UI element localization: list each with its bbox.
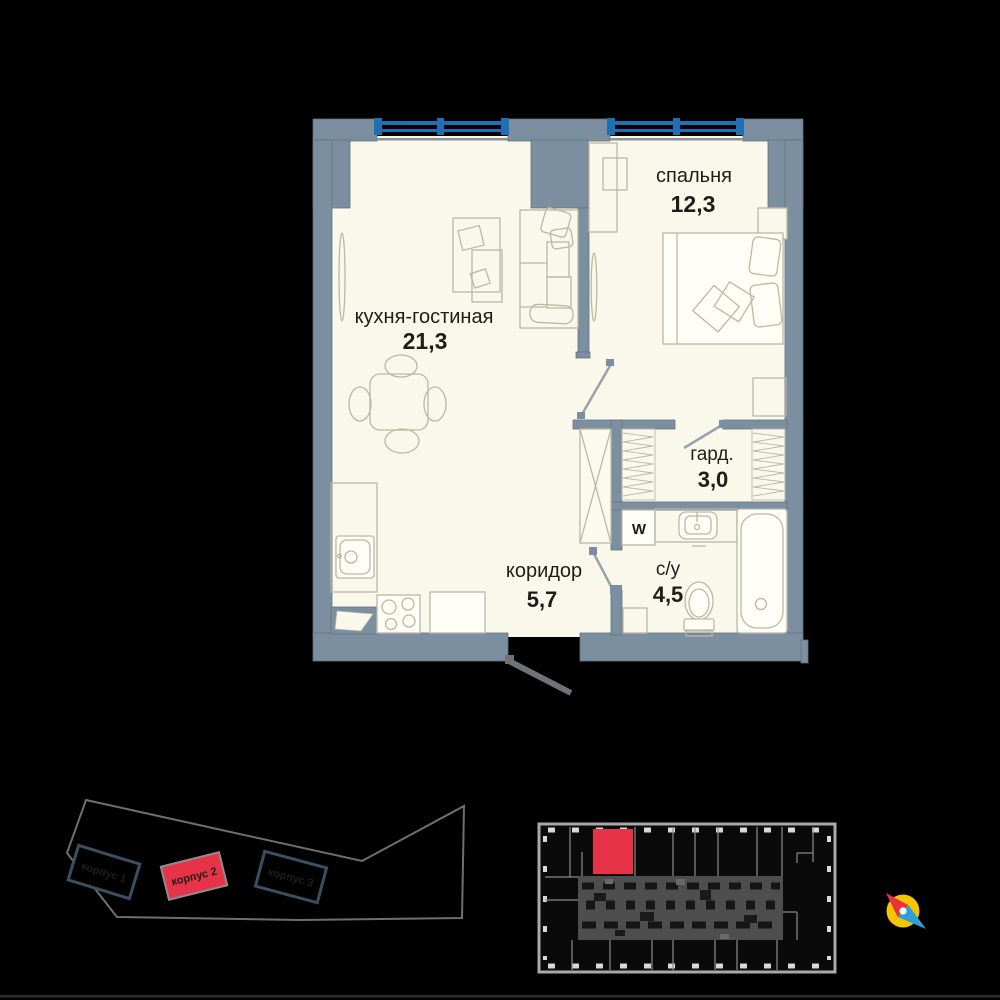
- compass-pivot: [899, 907, 906, 914]
- bathroom-door-hinge: [610, 585, 622, 594]
- wall-top-right-pier: [743, 119, 803, 141]
- core-block: [578, 876, 783, 940]
- room-label-kitchen-living: кухня-гостиная: [355, 306, 494, 328]
- wall-bottom-right: [580, 633, 803, 661]
- compass-icon: [886, 893, 926, 929]
- wall-top-middle-pier: [508, 119, 610, 141]
- floor-plan: кухня-гостиная 21,3 спальня 12,3 гард. 3…: [313, 118, 808, 693]
- bed: [663, 233, 783, 344]
- wall-corridor-east: [723, 420, 787, 429]
- room-area-bathroom: 4,5: [653, 582, 684, 607]
- wall-corridor-vertical: [611, 420, 622, 550]
- floor-schematic: [539, 824, 835, 972]
- bedroom-door-jamb: [606, 359, 614, 366]
- room-label-bedroom: спальня: [656, 165, 732, 187]
- bathroom-door-jamb: [589, 547, 597, 555]
- apartment-plan-page: кухня-гостиная 21,3 спальня 12,3 гард. 3…: [0, 0, 1000, 1000]
- wall-right: [785, 140, 803, 635]
- washer-label: W: [632, 521, 647, 538]
- wardrobe-door-hinge: [719, 420, 726, 428]
- corridor-closet: [580, 429, 611, 543]
- room-label-wardrobe: гард.: [690, 444, 734, 465]
- building-korpus-3[interactable]: корпус 3: [255, 851, 326, 902]
- wall-partition-end-cap: [576, 352, 590, 358]
- room-area-corridor: 5,7: [527, 587, 558, 612]
- wall-bathroom-left-lower: [611, 590, 622, 635]
- bottom-divider: [0, 995, 1000, 998]
- highlighted-unit[interactable]: [593, 829, 633, 874]
- bedroom-door-hinge: [577, 412, 585, 419]
- entrance-door-leaf: [509, 661, 571, 693]
- room-area-kitchen-living: 21,3: [403, 328, 448, 354]
- building-korpus-1[interactable]: корпус 1: [68, 845, 140, 898]
- plan-canvas: кухня-гостиная 21,3 спальня 12,3 гард. 3…: [0, 0, 1000, 1000]
- wall-bottom-left: [313, 633, 508, 661]
- room-area-wardrobe: 3,0: [698, 467, 729, 492]
- bathtub: [737, 509, 787, 633]
- wall-shaft-block: [531, 140, 588, 208]
- wall-partition-living-bedroom: [578, 208, 589, 357]
- wall-left: [313, 140, 332, 635]
- wall-bottom-step: [801, 640, 808, 663]
- toilet: [684, 582, 714, 636]
- room-area-bedroom: 12,3: [671, 191, 716, 217]
- wall-corridor-west: [573, 420, 675, 429]
- site-plan: корпус 1 корпус 2 корпус 3: [67, 800, 464, 920]
- room-label-corridor: коридор: [506, 560, 582, 582]
- room-label-bathroom: с/у: [656, 559, 681, 580]
- wall-top-left-pier: [313, 119, 377, 141]
- building-korpus-2[interactable]: корпус 2: [161, 852, 227, 900]
- entrance-door-hinge: [505, 655, 514, 664]
